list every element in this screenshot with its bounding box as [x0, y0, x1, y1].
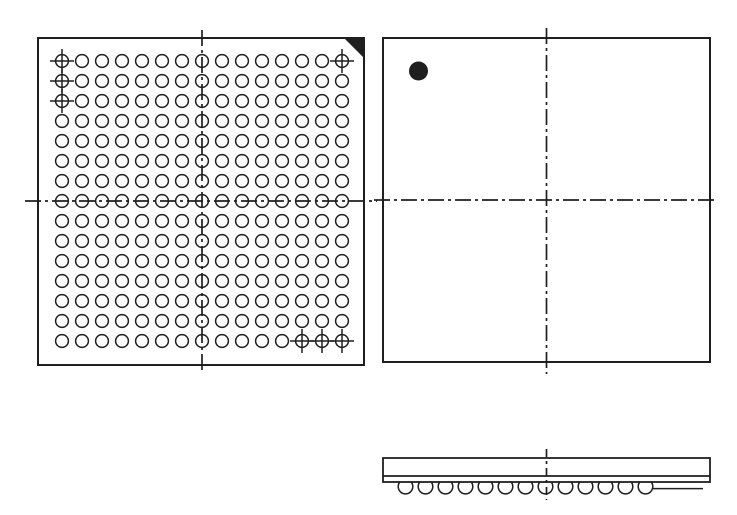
solder-ball-pad	[136, 95, 149, 108]
solder-ball-pad	[56, 135, 69, 148]
solder-ball-pad	[336, 275, 349, 288]
solder-ball-pad	[156, 175, 169, 188]
solder-ball-pad	[216, 75, 229, 88]
solder-ball-pad	[216, 115, 229, 128]
solder-ball-pad	[176, 155, 189, 168]
solder-ball-pad	[56, 255, 69, 268]
solder-ball-pad	[76, 275, 89, 288]
solder-ball-pad	[116, 255, 129, 268]
solder-ball-pad	[276, 55, 289, 68]
ball-crosshair-marker	[330, 49, 354, 73]
solder-ball-pad	[236, 155, 249, 168]
solder-ball-pad	[256, 235, 269, 248]
solder-ball-pad	[336, 315, 349, 328]
solder-ball-pad	[256, 55, 269, 68]
solder-ball-pad	[276, 135, 289, 148]
solder-ball-pad	[276, 295, 289, 308]
solder-ball-pad	[136, 335, 149, 348]
solder-ball-pad	[296, 55, 309, 68]
solder-ball-pad	[296, 295, 309, 308]
solder-ball-pad	[276, 175, 289, 188]
solder-ball-pad	[156, 75, 169, 88]
solder-ball-pad	[96, 235, 109, 248]
side-view-solder-ball	[578, 482, 593, 494]
solder-ball-pad	[176, 135, 189, 148]
solder-ball-pad	[96, 155, 109, 168]
solder-ball-pad	[336, 95, 349, 108]
solder-ball-pad	[156, 95, 169, 108]
side-view-solder-ball	[478, 482, 493, 494]
solder-ball-pad	[76, 255, 89, 268]
solder-ball-pad	[216, 315, 229, 328]
solder-ball-pad	[176, 315, 189, 328]
side-view-solder-ball	[418, 482, 433, 494]
solder-ball-pad	[96, 335, 109, 348]
solder-ball-pad	[176, 255, 189, 268]
solder-ball-pad	[96, 135, 109, 148]
solder-ball-pad	[56, 115, 69, 128]
solder-ball-pad	[76, 175, 89, 188]
solder-ball-pad	[296, 135, 309, 148]
solder-ball-pad	[216, 175, 229, 188]
solder-ball-pad	[276, 335, 289, 348]
solder-ball-pad	[116, 135, 129, 148]
solder-ball-pad	[316, 275, 329, 288]
solder-ball-pad	[176, 215, 189, 228]
solder-ball-pad	[96, 115, 109, 128]
solder-ball-pad	[296, 215, 309, 228]
solder-ball-pad	[296, 95, 309, 108]
solder-ball-pad	[176, 295, 189, 308]
solder-ball-pad	[56, 315, 69, 328]
solder-ball-pad	[316, 235, 329, 248]
solder-ball-pad	[56, 275, 69, 288]
solder-ball-pad	[176, 175, 189, 188]
bga-package-drawing	[0, 0, 737, 515]
solder-ball-pad	[156, 215, 169, 228]
solder-ball-pad	[276, 75, 289, 88]
solder-ball-pad	[116, 175, 129, 188]
solder-ball-pad	[236, 255, 249, 268]
solder-ball-pad	[116, 235, 129, 248]
solder-ball-pad	[96, 75, 109, 88]
solder-ball-pad	[76, 335, 89, 348]
bga-top-view	[374, 28, 717, 374]
solder-ball-pad	[116, 295, 129, 308]
solder-ball-pad	[56, 215, 69, 228]
solder-ball-pad	[316, 135, 329, 148]
solder-ball-pad	[336, 175, 349, 188]
solder-ball-pad	[316, 55, 329, 68]
solder-ball-pad	[256, 135, 269, 148]
solder-ball-pad	[236, 295, 249, 308]
solder-ball-pad	[316, 95, 329, 108]
solder-ball-pad	[256, 295, 269, 308]
solder-ball-pad	[256, 275, 269, 288]
side-view-solder-ball	[618, 482, 633, 494]
solder-ball-pad	[216, 295, 229, 308]
solder-ball-pad	[176, 55, 189, 68]
solder-ball-pad	[96, 55, 109, 68]
solder-ball-pad	[56, 175, 69, 188]
solder-ball-pad	[76, 315, 89, 328]
solder-ball-pad	[76, 75, 89, 88]
solder-ball-pad	[276, 315, 289, 328]
solder-ball-pad	[216, 255, 229, 268]
solder-ball-pad	[136, 75, 149, 88]
solder-ball-pad	[76, 295, 89, 308]
solder-ball-pad	[236, 75, 249, 88]
solder-ball-pad	[96, 95, 109, 108]
solder-ball-pad	[276, 215, 289, 228]
solder-ball-pad	[136, 115, 149, 128]
solder-ball-pad	[236, 235, 249, 248]
solder-ball-pad	[296, 175, 309, 188]
solder-ball-pad	[156, 275, 169, 288]
side-view-solder-ball	[598, 482, 613, 494]
solder-ball-pad	[176, 235, 189, 248]
solder-ball-pad	[136, 135, 149, 148]
solder-ball-pad	[276, 115, 289, 128]
solder-ball-pad	[236, 275, 249, 288]
side-view-solder-ball	[458, 482, 473, 494]
solder-ball-pad	[276, 275, 289, 288]
solder-ball-pad	[316, 215, 329, 228]
solder-ball-pad	[276, 95, 289, 108]
solder-ball-pad	[336, 155, 349, 168]
solder-ball-pad	[236, 135, 249, 148]
solder-ball-pad	[216, 155, 229, 168]
solder-ball-pad	[76, 235, 89, 248]
side-view-solder-ball	[538, 482, 553, 494]
solder-ball-pad	[216, 95, 229, 108]
pin1-corner-triangle	[345, 39, 363, 57]
side-view-solder-ball	[438, 482, 453, 494]
solder-ball-pad	[336, 255, 349, 268]
solder-ball-pad	[236, 175, 249, 188]
solder-ball-pad	[96, 295, 109, 308]
solder-ball-pad	[316, 115, 329, 128]
solder-ball-pad	[296, 115, 309, 128]
solder-ball-pad	[156, 255, 169, 268]
solder-ball-pad	[76, 55, 89, 68]
solder-ball-pad	[76, 115, 89, 128]
solder-ball-pad	[116, 275, 129, 288]
solder-ball-pad	[316, 175, 329, 188]
solder-ball-pad	[336, 75, 349, 88]
solder-ball-pad	[136, 275, 149, 288]
solder-ball-pad	[116, 335, 129, 348]
solder-ball-pad	[176, 335, 189, 348]
solder-ball-pad	[156, 235, 169, 248]
solder-ball-pad	[336, 295, 349, 308]
solder-ball-pad	[116, 75, 129, 88]
ball-crosshair-marker	[330, 329, 354, 353]
solder-ball-pad	[236, 315, 249, 328]
solder-ball-pad	[116, 155, 129, 168]
side-view-solder-ball	[638, 482, 653, 494]
solder-ball-pad	[136, 55, 149, 68]
bga-side-view	[383, 449, 710, 500]
solder-ball-pad	[236, 55, 249, 68]
solder-ball-pad	[316, 155, 329, 168]
solder-ball-pad	[96, 275, 109, 288]
solder-ball-pad	[96, 315, 109, 328]
solder-ball-pad	[56, 335, 69, 348]
solder-ball-pad	[136, 175, 149, 188]
solder-ball-pad	[216, 335, 229, 348]
solder-ball-pad	[76, 135, 89, 148]
solder-ball-pad	[316, 255, 329, 268]
solder-ball-pad	[176, 275, 189, 288]
ball-crosshair-marker	[50, 89, 74, 113]
solder-ball-pad	[116, 55, 129, 68]
solder-ball-pad	[316, 75, 329, 88]
solder-ball-pad	[136, 235, 149, 248]
solder-ball-pad	[76, 95, 89, 108]
solder-ball-pad	[156, 295, 169, 308]
solder-ball-pad	[276, 155, 289, 168]
solder-ball-pad	[256, 315, 269, 328]
solder-ball-pad	[256, 115, 269, 128]
solder-ball-pad	[256, 95, 269, 108]
solder-ball-pad	[216, 275, 229, 288]
solder-ball-pad	[316, 295, 329, 308]
solder-ball-pad	[156, 135, 169, 148]
solder-ball-pad	[96, 255, 109, 268]
solder-ball-pad	[276, 235, 289, 248]
solder-ball-pad	[256, 75, 269, 88]
solder-ball-pad	[156, 115, 169, 128]
solder-ball-pad	[236, 115, 249, 128]
solder-ball-pad	[236, 215, 249, 228]
side-view-solder-ball	[398, 482, 413, 494]
solder-ball-pad	[96, 215, 109, 228]
solder-ball-pad	[136, 155, 149, 168]
solder-ball-pad	[116, 95, 129, 108]
solder-ball-pad	[256, 175, 269, 188]
solder-ball-pad	[316, 315, 329, 328]
solder-ball-pad	[336, 215, 349, 228]
side-view-solder-ball	[518, 482, 533, 494]
side-view-solder-ball	[498, 482, 513, 494]
solder-ball-pad	[296, 155, 309, 168]
package-drawing-svg	[0, 0, 737, 515]
side-view-solder-ball	[558, 482, 573, 494]
solder-ball-pad	[116, 315, 129, 328]
solder-ball-pad	[276, 255, 289, 268]
solder-ball-pad	[56, 235, 69, 248]
solder-ball-pad	[256, 335, 269, 348]
solder-ball-pad	[236, 95, 249, 108]
solder-ball-pad	[156, 55, 169, 68]
solder-ball-pad	[76, 215, 89, 228]
solder-ball-pad	[56, 155, 69, 168]
solder-ball-pad	[56, 295, 69, 308]
solder-ball-pad	[136, 295, 149, 308]
solder-ball-pad	[236, 335, 249, 348]
solder-ball-pad	[116, 115, 129, 128]
solder-ball-pad	[116, 215, 129, 228]
solder-ball-pad	[76, 155, 89, 168]
solder-ball-pad	[296, 275, 309, 288]
solder-ball-pad	[216, 135, 229, 148]
solder-ball-pad	[156, 315, 169, 328]
solder-ball-pad	[156, 335, 169, 348]
solder-ball-pad	[136, 255, 149, 268]
solder-ball-pad	[336, 115, 349, 128]
solder-ball-pad	[336, 135, 349, 148]
solder-ball-pad	[216, 235, 229, 248]
solder-ball-pad	[136, 215, 149, 228]
solder-ball-pad	[296, 235, 309, 248]
solder-ball-pad	[96, 175, 109, 188]
solder-ball-pad	[176, 95, 189, 108]
pin1-indicator-dot	[409, 62, 428, 81]
solder-ball-pad	[296, 255, 309, 268]
solder-ball-pad	[216, 55, 229, 68]
solder-ball-pad	[176, 75, 189, 88]
solder-ball-pad	[256, 255, 269, 268]
solder-ball-pad	[296, 315, 309, 328]
bga-bottom-view	[25, 30, 377, 374]
solder-ball-pad	[136, 315, 149, 328]
solder-ball-pad	[176, 115, 189, 128]
solder-ball-pad	[156, 155, 169, 168]
solder-ball-pad	[256, 215, 269, 228]
solder-ball-pad	[216, 215, 229, 228]
solder-ball-pad	[256, 155, 269, 168]
side-view-solder-balls	[398, 482, 680, 494]
solder-ball-pad	[296, 75, 309, 88]
solder-ball-pad	[336, 235, 349, 248]
